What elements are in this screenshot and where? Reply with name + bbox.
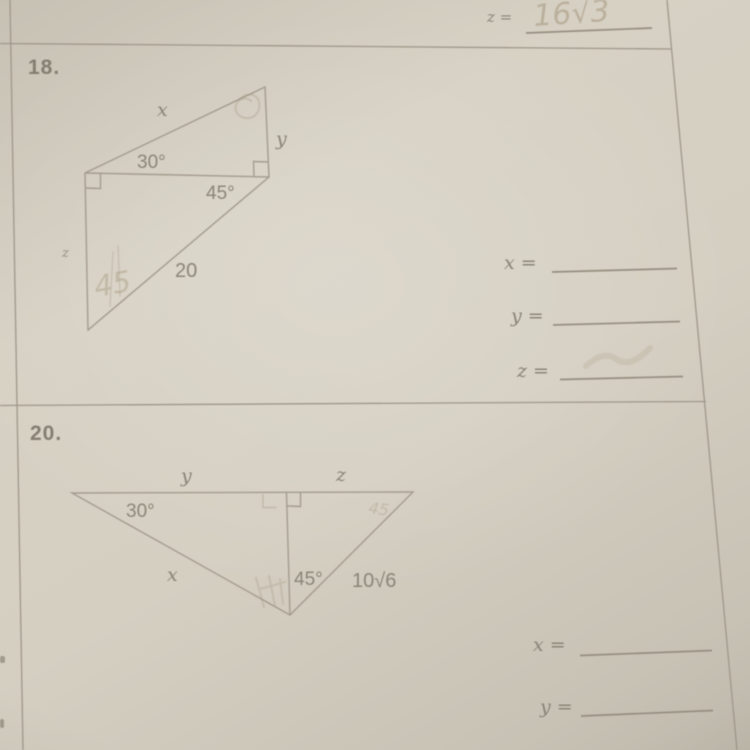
worksheet-canvas: z = 16√3 18. x 30° y 45° z 20 45 bbox=[0, 0, 750, 750]
p20-answer-y-label: y = bbox=[539, 696, 573, 718]
p20-triangle bbox=[72, 492, 413, 615]
edge-mark-2 bbox=[0, 719, 4, 728]
horizontal-rule-top bbox=[0, 44, 671, 50]
worksheet-photo: z = 16√3 18. x 30° y 45° z 20 45 bbox=[0, 0, 750, 750]
top-answer-row: z = 16√3 bbox=[486, 0, 652, 34]
p18-answer-y-label: y = bbox=[510, 305, 544, 327]
p20-answer-y-blank bbox=[581, 711, 713, 717]
p18-right-angle-marker-lower bbox=[86, 174, 101, 189]
p18-answer-z-blank bbox=[560, 377, 683, 380]
p18-side-y-label: y bbox=[275, 128, 287, 150]
left-margin-line bbox=[10, 0, 23, 750]
p18-answer-x-label: x = bbox=[504, 252, 537, 274]
p18-number: 18. bbox=[28, 56, 60, 79]
problem-18: 18. x 30° y 45° z 20 45 x = y = bbox=[28, 56, 683, 382]
top-z-label: z = bbox=[486, 8, 512, 26]
page-rules bbox=[0, 0, 737, 750]
p18-hypotenuse-label: 20 bbox=[175, 260, 197, 282]
p18-upper-triangle bbox=[85, 87, 269, 177]
p18-figure: x 30° y 45° z 20 45 bbox=[61, 87, 287, 330]
p20-side-z-label: z bbox=[335, 464, 347, 486]
p20-right-angle-marker bbox=[288, 493, 301, 507]
p18-answer-y-blank bbox=[553, 322, 680, 326]
problem-20: 20. y z 30° x 45° 10√6 45 x = y = bbox=[30, 422, 713, 718]
p20-pencil-right-angle-marker bbox=[263, 495, 276, 508]
p20-number: 20. bbox=[30, 422, 62, 445]
p18-right-angle-marker-upper bbox=[254, 162, 269, 177]
p18-answer-z-label: z = bbox=[516, 360, 549, 382]
p20-altitude bbox=[287, 493, 291, 615]
p20-answer-x-label: x = bbox=[533, 634, 566, 656]
right-margin-line bbox=[667, 0, 737, 750]
p20-angle-30-label: 30° bbox=[126, 501, 155, 522]
p18-angle-45-label: 45° bbox=[206, 183, 235, 204]
p20-side-x-label: x bbox=[167, 564, 178, 586]
p20-side-y-label: y bbox=[180, 465, 192, 487]
p20-answers: x = y = bbox=[533, 634, 713, 718]
p18-side-x-label: x bbox=[157, 99, 168, 121]
p18-side-z-label: z bbox=[61, 246, 69, 261]
top-handwritten-answer: 16√3 bbox=[532, 0, 611, 34]
p18-angle-30-label: 30° bbox=[137, 152, 166, 173]
p18-answer-x-blank bbox=[552, 269, 677, 273]
p18-pencil-scribble-apex bbox=[235, 95, 259, 119]
p20-angle-45-label: 45° bbox=[294, 569, 323, 590]
p20-answer-x-blank bbox=[580, 651, 712, 656]
horizontal-rule-middle bbox=[0, 402, 706, 406]
p20-hypotenuse-label: 10√6 bbox=[352, 570, 396, 592]
edge-mark-1 bbox=[0, 656, 5, 663]
p18-erased-smudge bbox=[586, 348, 650, 366]
p18-answers: x = y = z = bbox=[504, 252, 683, 382]
p20-pencil-note: 45 bbox=[367, 498, 390, 520]
p20-pencil-scribble-bottom bbox=[256, 576, 285, 607]
p20-figure: y z 30° x 45° 10√6 45 bbox=[72, 464, 413, 615]
photo-edge-marks bbox=[0, 656, 5, 728]
